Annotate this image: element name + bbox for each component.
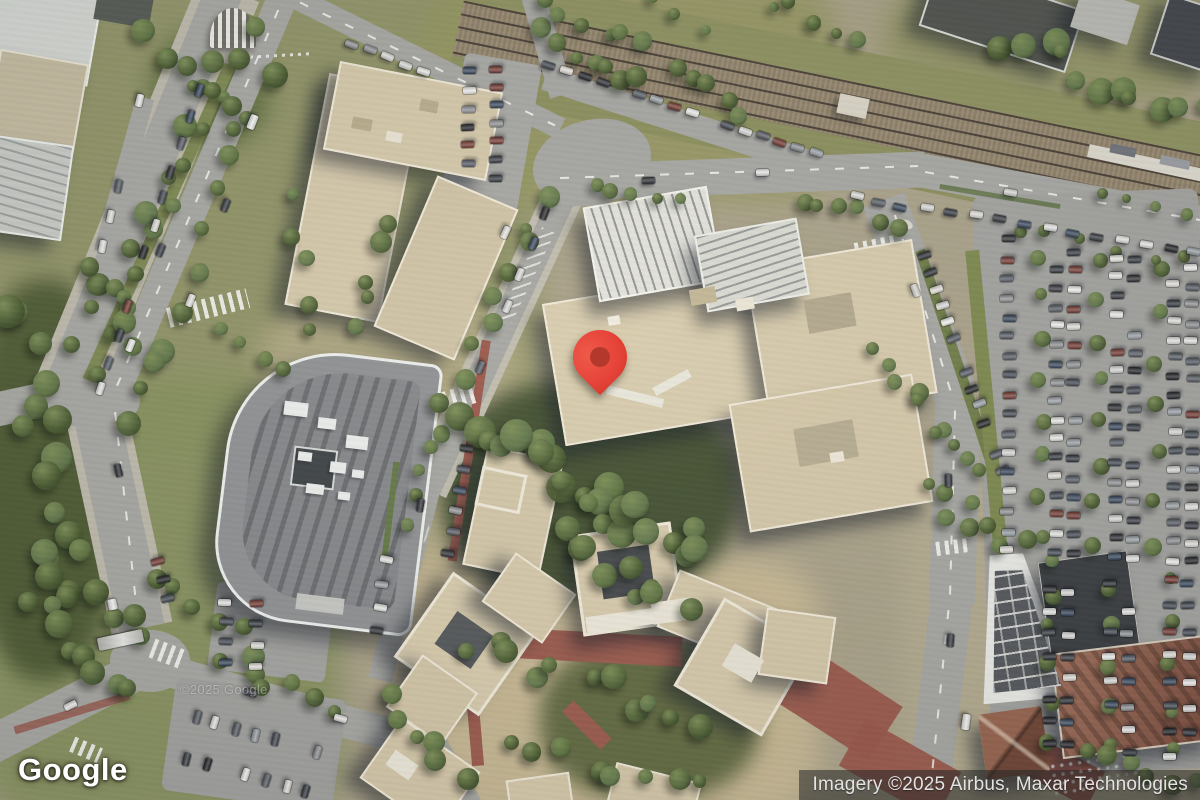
- car: [1168, 408, 1181, 415]
- car: [1000, 332, 1013, 339]
- tree: [1030, 250, 1046, 266]
- tree: [1067, 71, 1085, 89]
- tree: [1029, 488, 1045, 504]
- location-pin-icon[interactable]: [570, 330, 630, 408]
- car: [461, 140, 474, 148]
- car: [1062, 631, 1075, 639]
- tree: [104, 608, 124, 628]
- car: [1066, 438, 1079, 445]
- tree: [483, 313, 503, 333]
- car: [1126, 275, 1139, 282]
- car: [1061, 609, 1074, 616]
- car: [1043, 717, 1056, 724]
- car: [1167, 392, 1180, 399]
- tree: [669, 768, 691, 790]
- car: [1068, 286, 1081, 293]
- tree: [298, 250, 314, 266]
- car: [1185, 522, 1198, 529]
- car: [489, 66, 502, 73]
- tree: [361, 290, 375, 304]
- tree: [424, 749, 446, 771]
- car: [641, 176, 654, 183]
- tree: [1088, 292, 1103, 307]
- roof-unit: [352, 469, 365, 478]
- tree: [1152, 444, 1167, 459]
- car: [1105, 701, 1118, 708]
- roof-unit: [345, 435, 368, 451]
- tree: [831, 28, 842, 39]
- tree: [579, 494, 597, 512]
- tree: [850, 199, 864, 213]
- tree: [626, 66, 647, 87]
- tree: [531, 17, 551, 37]
- car: [1104, 628, 1117, 635]
- tree: [157, 48, 177, 68]
- car: [1167, 519, 1180, 526]
- tree: [652, 193, 663, 204]
- tree: [305, 688, 324, 707]
- tree: [668, 8, 680, 20]
- map-watermark: ©2025 Google: [180, 682, 268, 697]
- car: [1166, 373, 1179, 380]
- tree: [621, 491, 648, 518]
- car: [1103, 580, 1116, 587]
- car: [1067, 511, 1080, 518]
- car: [1048, 549, 1061, 556]
- car: [1167, 300, 1180, 307]
- car: [1111, 292, 1124, 299]
- tree: [1036, 414, 1052, 430]
- car: [1184, 337, 1197, 344]
- tree: [300, 296, 318, 314]
- car: [1067, 494, 1080, 502]
- car: [1002, 235, 1015, 242]
- tree: [890, 219, 908, 237]
- car: [1111, 348, 1124, 355]
- car: [462, 160, 475, 167]
- car: [1183, 705, 1196, 712]
- car: [1050, 341, 1063, 348]
- car: [1185, 557, 1198, 565]
- tree: [201, 50, 224, 73]
- car: [1002, 448, 1015, 455]
- car: [1001, 468, 1014, 475]
- tree: [633, 518, 659, 544]
- car: [375, 580, 389, 589]
- tree: [258, 351, 274, 367]
- car: [460, 124, 473, 132]
- car: [1051, 321, 1064, 329]
- car: [1167, 466, 1180, 473]
- car: [1116, 235, 1130, 244]
- car: [1060, 696, 1073, 703]
- tree: [1084, 537, 1101, 554]
- car: [1050, 434, 1063, 442]
- car: [1066, 476, 1079, 483]
- attribution-text: Imagery ©2025 Airbus, Maxar Technologies: [813, 774, 1188, 796]
- roof-unit: [329, 461, 346, 474]
- tree: [222, 96, 242, 116]
- car: [250, 600, 263, 608]
- car: [1051, 379, 1064, 386]
- tree: [35, 562, 63, 590]
- car: [1180, 602, 1193, 610]
- map-viewport[interactable]: ©2025 Google Google Imagery ©2025 Airbus…: [0, 0, 1200, 800]
- car: [1180, 579, 1193, 586]
- car: [463, 87, 476, 95]
- car: [1168, 446, 1181, 454]
- car: [1126, 480, 1139, 488]
- roof-unit: [338, 491, 351, 500]
- car: [249, 663, 262, 670]
- car: [1126, 555, 1139, 562]
- tree: [284, 674, 300, 690]
- car: [1109, 515, 1122, 522]
- car: [1184, 264, 1197, 271]
- tree: [80, 660, 105, 685]
- car: [1186, 411, 1199, 418]
- car: [1049, 361, 1062, 368]
- car: [1066, 379, 1079, 387]
- car: [1043, 586, 1056, 593]
- car: [1169, 353, 1182, 360]
- car: [946, 633, 954, 647]
- car: [1043, 696, 1056, 703]
- car: [1163, 728, 1176, 735]
- car: [1061, 654, 1074, 661]
- car: [1061, 741, 1074, 749]
- tree: [18, 592, 38, 612]
- tree: [226, 121, 241, 136]
- car: [1110, 311, 1123, 318]
- tree: [624, 187, 637, 200]
- parking-garage: [0, 135, 74, 241]
- car: [755, 168, 768, 175]
- car: [1050, 530, 1063, 537]
- car: [1167, 483, 1180, 491]
- tree: [1150, 201, 1161, 212]
- tree: [633, 31, 653, 51]
- car: [1050, 510, 1063, 517]
- car: [489, 175, 502, 182]
- tree: [1153, 304, 1168, 319]
- car: [1182, 729, 1195, 737]
- roof-unit: [317, 417, 336, 430]
- car: [1187, 374, 1200, 381]
- roof-unit: [305, 483, 324, 495]
- tree: [455, 369, 476, 390]
- car: [1062, 674, 1075, 682]
- car: [490, 84, 503, 91]
- car: [1184, 484, 1197, 491]
- car: [1003, 392, 1016, 400]
- car: [1067, 248, 1080, 255]
- car: [490, 120, 503, 127]
- tree: [669, 59, 687, 77]
- car: [1066, 455, 1079, 462]
- tree: [116, 411, 141, 436]
- tree: [175, 158, 190, 173]
- car: [1121, 704, 1134, 712]
- roof-unit: [283, 401, 309, 418]
- tree: [1093, 253, 1108, 268]
- car: [1167, 537, 1180, 544]
- tree: [693, 774, 706, 787]
- tree: [234, 336, 246, 348]
- car: [1109, 495, 1122, 502]
- car: [1002, 529, 1015, 536]
- tree: [849, 31, 866, 48]
- tree: [528, 439, 555, 466]
- car: [1067, 306, 1080, 313]
- car: [490, 101, 503, 108]
- car: [1000, 546, 1013, 553]
- car: [1186, 358, 1199, 365]
- car: [1066, 531, 1079, 538]
- car: [1104, 677, 1117, 685]
- car: [1000, 295, 1013, 303]
- car: [944, 208, 958, 217]
- car: [1110, 534, 1123, 541]
- car: [1129, 350, 1142, 357]
- car: [1168, 317, 1181, 325]
- tree: [1168, 97, 1188, 117]
- tree: [32, 461, 60, 489]
- car: [1164, 702, 1177, 709]
- car: [1067, 323, 1080, 330]
- tree: [539, 186, 561, 208]
- car: [1109, 423, 1122, 430]
- tree: [1089, 335, 1105, 351]
- car: [1049, 304, 1062, 311]
- tree: [1091, 412, 1106, 427]
- car: [1049, 453, 1062, 461]
- car: [1128, 256, 1141, 263]
- car: [1167, 337, 1180, 344]
- car: [1068, 342, 1081, 349]
- roof-unit: [298, 451, 313, 462]
- car: [921, 203, 935, 212]
- tree: [84, 300, 98, 314]
- car: [219, 638, 232, 646]
- tree: [177, 56, 197, 76]
- car: [1043, 653, 1056, 661]
- car: [220, 618, 233, 626]
- car: [1050, 266, 1063, 273]
- tree: [640, 581, 663, 604]
- tree: [769, 2, 779, 12]
- tree: [348, 318, 365, 335]
- tree: [831, 198, 847, 214]
- tree: [987, 36, 1011, 60]
- car: [1163, 753, 1176, 760]
- car: [1186, 321, 1199, 328]
- car: [1001, 257, 1014, 264]
- car: [1183, 629, 1196, 636]
- tree: [592, 563, 617, 588]
- tree: [602, 183, 618, 199]
- car: [1108, 459, 1121, 466]
- google-logo[interactable]: Google: [18, 752, 128, 788]
- car: [1163, 651, 1176, 658]
- car: [1042, 740, 1055, 747]
- tree: [551, 737, 571, 757]
- car: [218, 598, 231, 605]
- car: [1003, 410, 1016, 417]
- car: [1122, 677, 1135, 684]
- tree: [680, 598, 703, 621]
- tree: [83, 579, 109, 605]
- tree: [80, 257, 99, 276]
- tree: [410, 730, 424, 744]
- car: [1128, 367, 1141, 375]
- car: [1185, 503, 1198, 510]
- car: [1108, 479, 1121, 486]
- tree: [303, 323, 316, 336]
- car: [1163, 628, 1176, 636]
- car: [1185, 540, 1198, 547]
- car: [1110, 254, 1123, 262]
- car: [462, 106, 475, 113]
- car: [1048, 397, 1061, 405]
- car: [1068, 266, 1081, 273]
- car: [1162, 602, 1175, 610]
- tree: [388, 710, 407, 729]
- car: [1185, 431, 1198, 438]
- car: [1003, 353, 1016, 360]
- tree: [1054, 44, 1068, 58]
- tree: [1018, 530, 1037, 549]
- car: [1183, 679, 1196, 686]
- car: [1050, 492, 1063, 500]
- car: [370, 626, 384, 635]
- car: [1051, 417, 1064, 424]
- car: [1003, 370, 1016, 378]
- tree: [219, 145, 239, 165]
- car: [249, 620, 262, 627]
- tree: [43, 405, 72, 434]
- tree: [1165, 614, 1180, 629]
- car: [106, 598, 117, 611]
- tree: [806, 15, 821, 30]
- car: [1102, 653, 1115, 660]
- car: [1061, 589, 1074, 596]
- tree: [550, 7, 566, 23]
- car: [1067, 550, 1080, 557]
- car: [1122, 726, 1135, 733]
- car: [1067, 361, 1080, 369]
- car: [1166, 280, 1179, 287]
- tree: [1100, 659, 1116, 675]
- car: [1126, 423, 1139, 431]
- car: [1108, 404, 1121, 411]
- tree: [457, 768, 478, 789]
- car: [1109, 272, 1122, 279]
- car: [1128, 406, 1141, 414]
- car: [489, 137, 502, 144]
- car: [1139, 240, 1153, 249]
- tree: [548, 33, 566, 51]
- tree: [262, 62, 288, 88]
- tree: [401, 518, 415, 532]
- tree: [1144, 538, 1162, 556]
- car: [463, 67, 476, 74]
- building: [758, 607, 837, 684]
- car: [1122, 608, 1135, 615]
- tree: [191, 263, 210, 282]
- car: [219, 658, 232, 665]
- car: [1120, 630, 1133, 637]
- car: [1126, 535, 1139, 543]
- car: [1003, 187, 1017, 196]
- car: [1165, 576, 1178, 583]
- tree: [911, 393, 924, 406]
- car: [1000, 508, 1013, 515]
- car: [1128, 332, 1141, 340]
- tree: [574, 18, 589, 33]
- car: [1048, 285, 1061, 292]
- tree: [522, 742, 541, 761]
- tree: [183, 599, 199, 615]
- car: [251, 642, 264, 649]
- car: [1186, 466, 1199, 473]
- tree: [1160, 656, 1174, 670]
- tree: [131, 19, 155, 43]
- tree: [214, 322, 228, 336]
- tree: [810, 199, 823, 212]
- car: [1003, 315, 1016, 322]
- car: [1003, 487, 1016, 495]
- tree: [688, 714, 713, 739]
- car: [850, 191, 864, 201]
- car: [1048, 471, 1061, 479]
- car: [1000, 275, 1013, 282]
- car: [1166, 557, 1179, 565]
- tree: [730, 107, 748, 125]
- car: [489, 155, 502, 163]
- tree: [1151, 255, 1161, 265]
- car: [1069, 417, 1082, 424]
- tree: [619, 556, 643, 580]
- car: [1110, 386, 1123, 393]
- car: [1127, 517, 1140, 524]
- imagery-attribution: Imagery ©2025 Airbus, Maxar Technologies: [799, 770, 1200, 800]
- car: [1162, 678, 1175, 685]
- tree: [1034, 331, 1051, 348]
- car: [1126, 498, 1139, 505]
- car: [1043, 608, 1056, 615]
- car: [1186, 447, 1199, 454]
- tree: [166, 198, 181, 213]
- tree: [681, 535, 708, 562]
- tree: [571, 535, 595, 559]
- car: [969, 211, 983, 220]
- tree: [204, 82, 221, 99]
- tree: [12, 415, 34, 437]
- tree: [123, 604, 146, 627]
- tree: [601, 664, 626, 689]
- car: [1110, 366, 1123, 373]
- tree: [1036, 530, 1050, 544]
- car: [1123, 749, 1136, 756]
- tree: [210, 180, 225, 195]
- car: [1169, 428, 1182, 435]
- tree: [1121, 90, 1136, 105]
- car: [1108, 553, 1121, 560]
- car: [1110, 439, 1123, 446]
- car: [415, 498, 424, 512]
- tree: [228, 48, 250, 70]
